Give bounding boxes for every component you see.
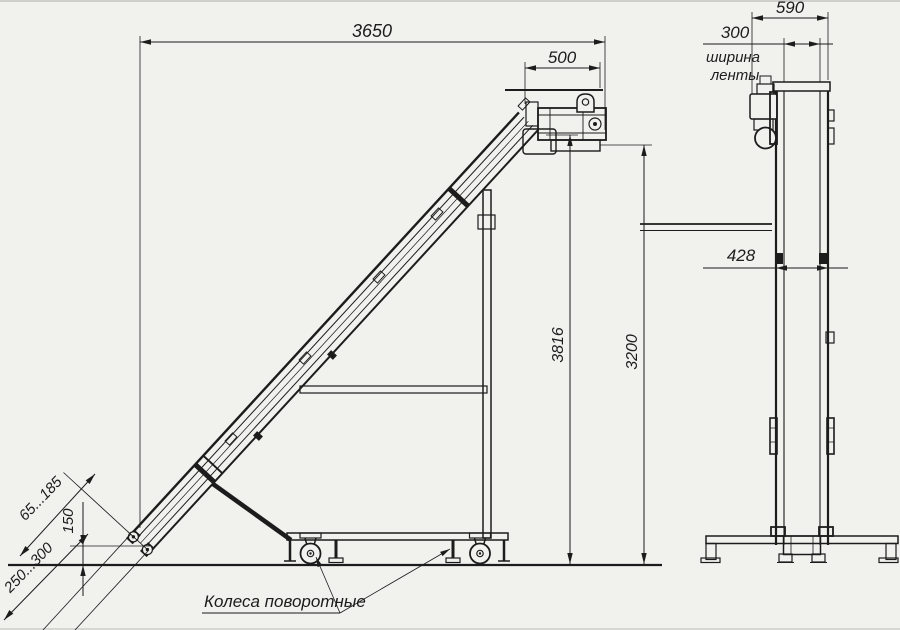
- side-view: [8, 90, 772, 565]
- caster-left: [300, 533, 321, 564]
- conveyor-technical-drawing: 3650 500 3816 3200 590 300 ширина лен: [0, 0, 900, 630]
- dim-overall-length-value: 3650: [352, 21, 392, 41]
- dim-tail-range-value: 250...300: [0, 539, 57, 597]
- belt-width-note-2: ленты: [710, 67, 760, 84]
- dimension-tail-group: 65...185 250...300 150: [0, 472, 150, 630]
- belt-width-note-1: ширина: [706, 49, 760, 66]
- front-base: [701, 527, 898, 563]
- dim-infeed-range-value: 65...185: [16, 473, 66, 524]
- vertical-rails: [773, 82, 830, 545]
- rail-brackets: [770, 110, 834, 454]
- inclined-belt: [126, 98, 538, 557]
- dimension-infeed-range: 65...185: [16, 472, 97, 558]
- dimension-total-height: 3816: [546, 135, 578, 564]
- dim-head-section-value: 500: [548, 48, 577, 67]
- head-pulley-cap: [773, 82, 830, 91]
- dim-infeed-height-value: 150: [60, 508, 77, 534]
- dim-total-height-value: 3816: [550, 327, 567, 363]
- support-frame: [213, 190, 510, 563]
- dimension-overall-length: 3650: [140, 21, 605, 528]
- dim-belt-width-value: 300: [721, 23, 750, 42]
- dim-discharge-height-value: 3200: [624, 334, 641, 370]
- caster-right: [470, 533, 491, 564]
- casters-annotation: Колеса поворотные: [202, 547, 451, 613]
- dim-frame-width-value: 428: [727, 246, 756, 265]
- front-view: [701, 76, 898, 563]
- dim-overall-width-value: 590: [776, 0, 805, 17]
- dimension-belt-width: 300 ширина ленты: [703, 23, 833, 84]
- bearing-bracket: [577, 94, 594, 112]
- dimension-discharge-height: 3200: [600, 145, 652, 564]
- casters-label: Колеса поворотные: [204, 592, 366, 611]
- dimension-overall-width: 590: [752, 0, 828, 94]
